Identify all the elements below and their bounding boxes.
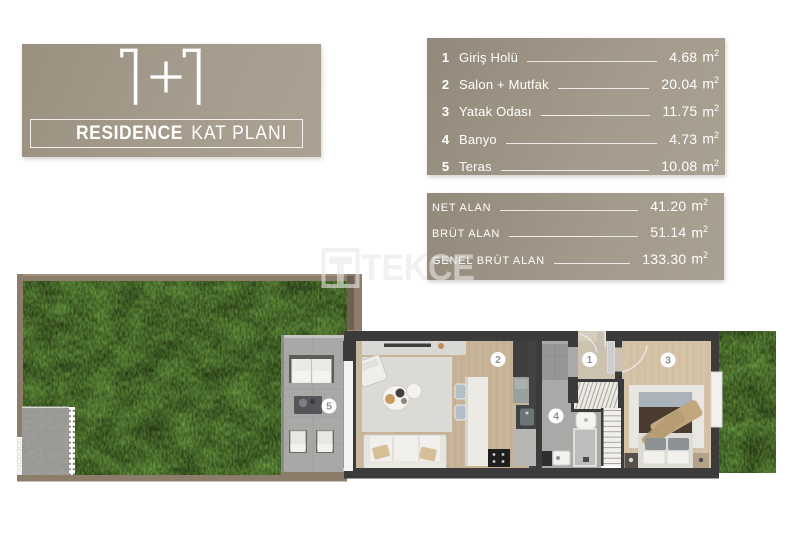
svg-text:4: 4 xyxy=(553,411,559,423)
svg-text:5: 5 xyxy=(326,401,332,413)
svg-text:2: 2 xyxy=(495,354,501,366)
svg-text:1: 1 xyxy=(587,354,593,366)
svg-text:3: 3 xyxy=(665,355,671,367)
